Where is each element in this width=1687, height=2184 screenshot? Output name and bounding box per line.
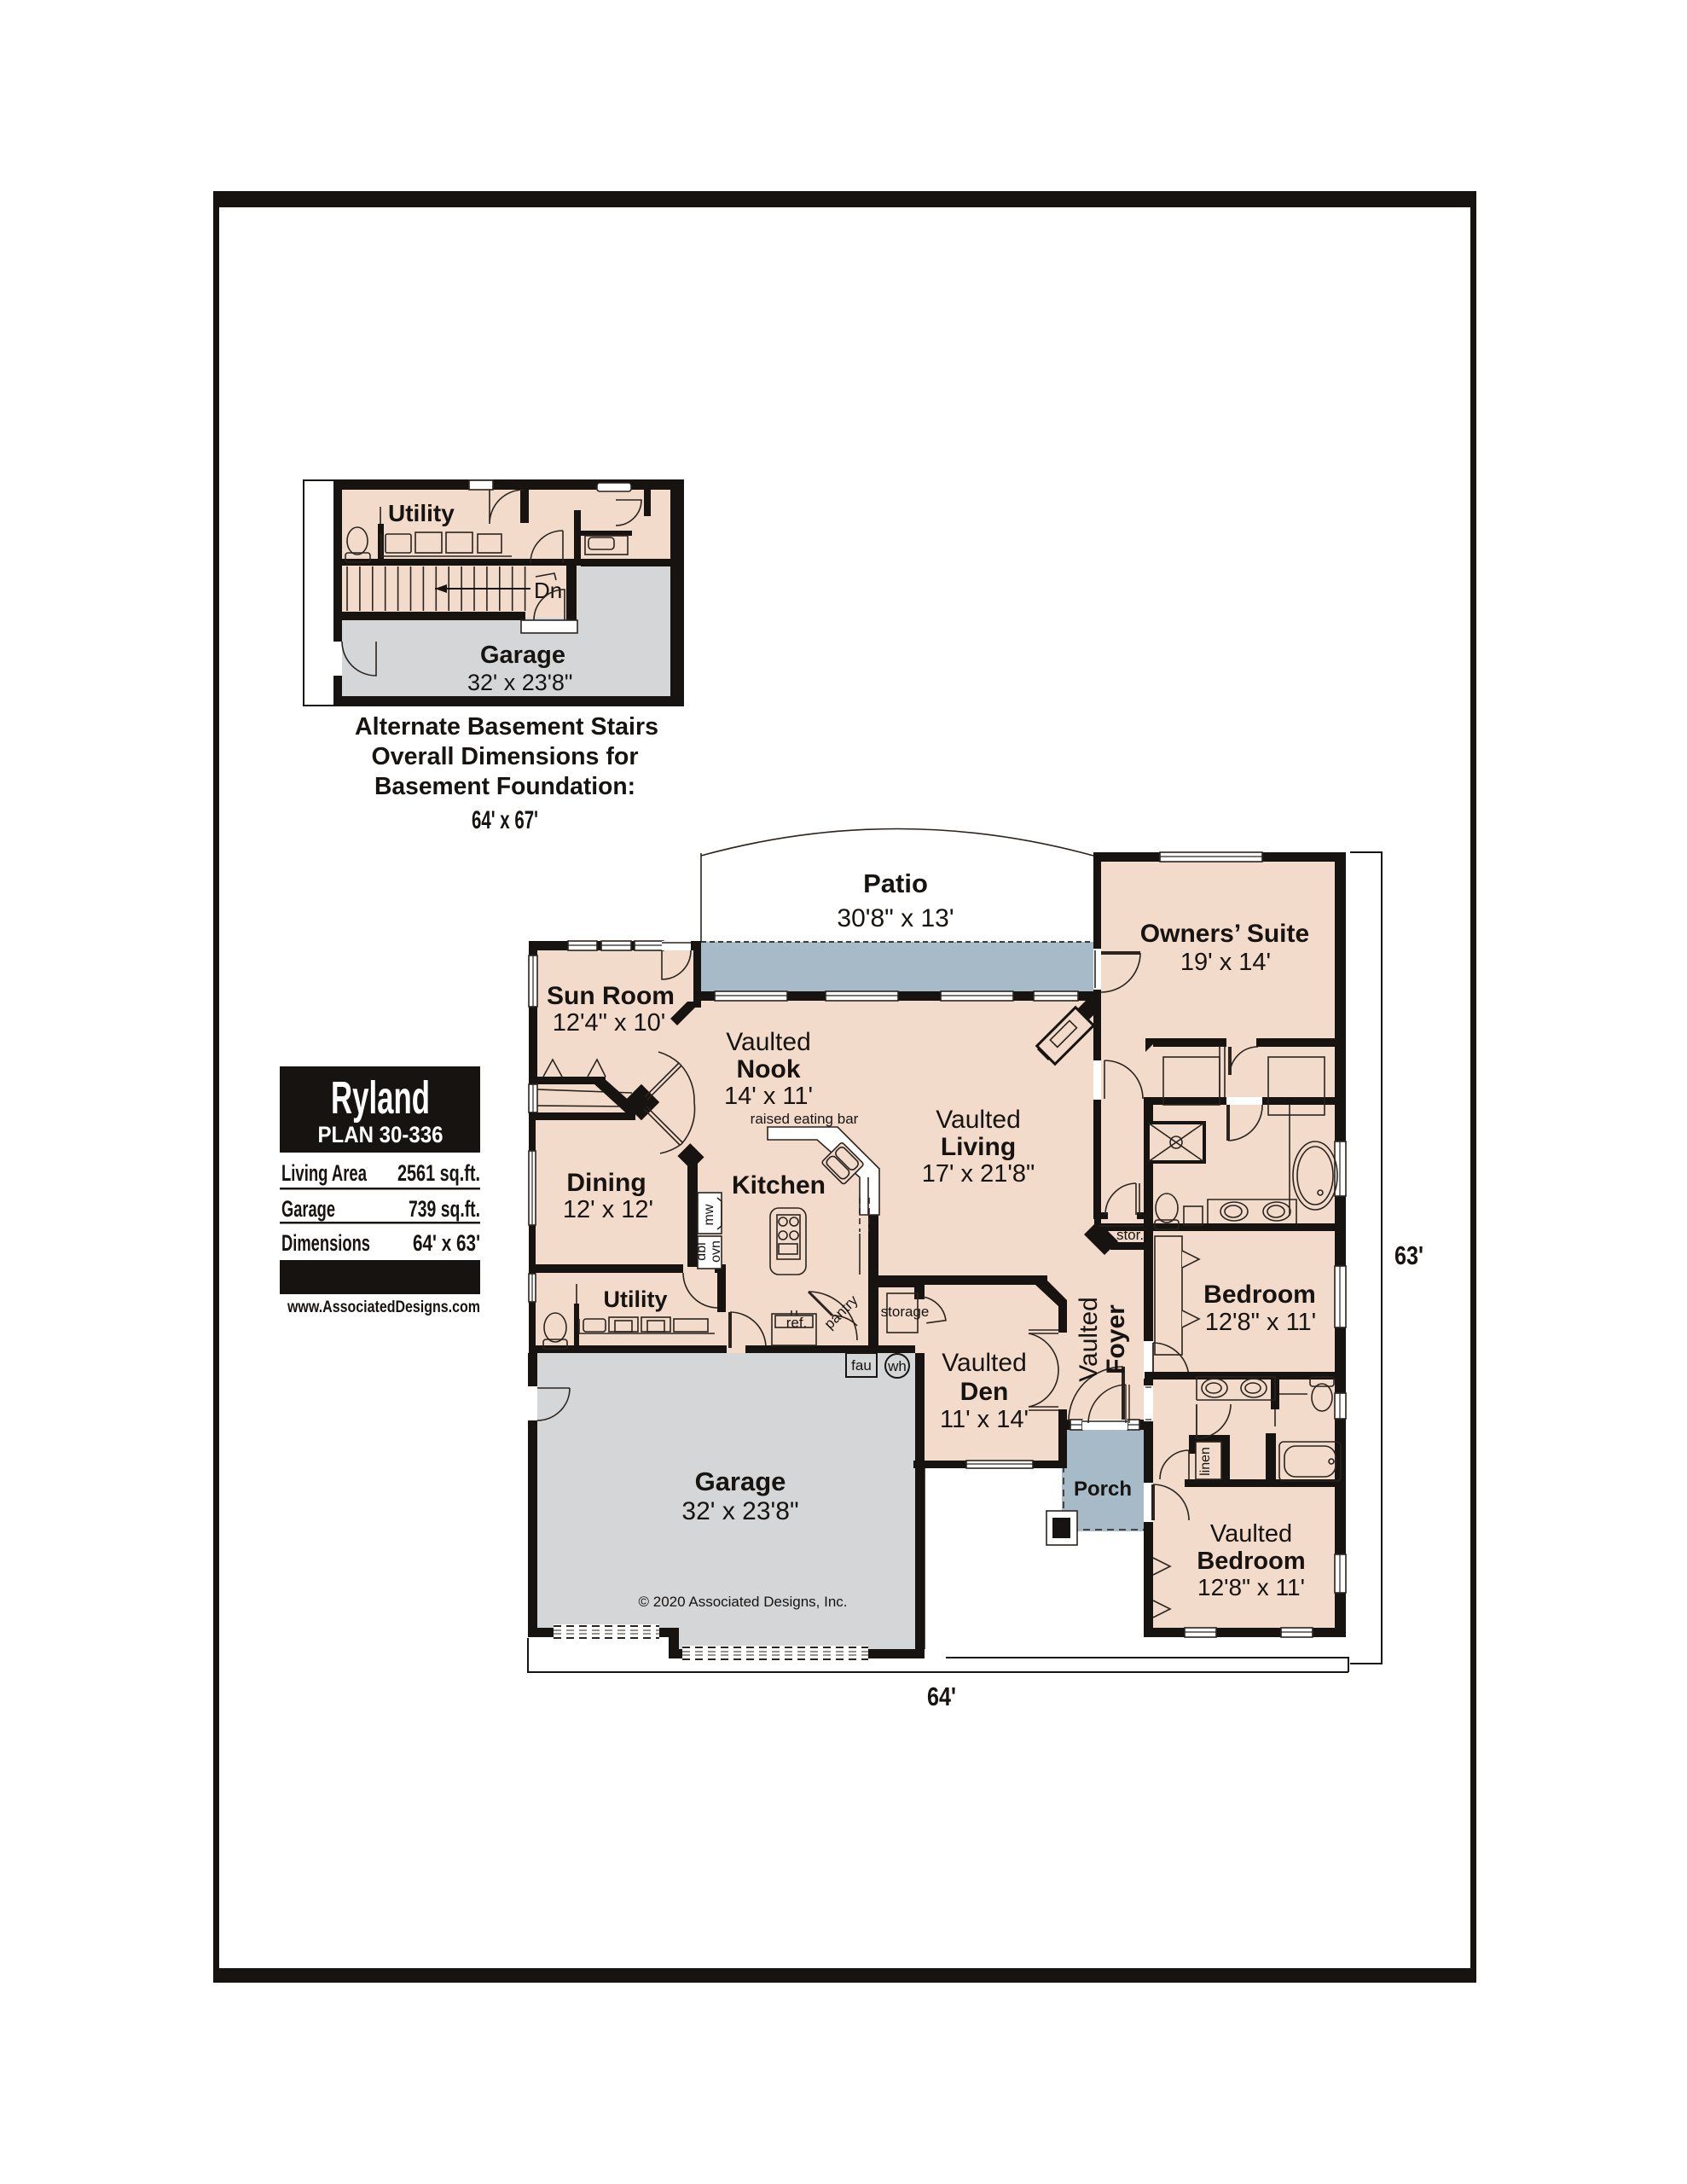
svg-text:ref.: ref. — [786, 1315, 808, 1331]
svg-text:Living Area: Living Area — [281, 1160, 368, 1186]
svg-text:Alternate Basement Stairs: Alternate Basement Stairs — [355, 713, 658, 741]
svg-text:mw: mw — [702, 1204, 716, 1225]
svg-text:32' x 23'8": 32' x 23'8" — [467, 670, 572, 695]
svg-text:12'8" x 11': 12'8" x 11' — [1197, 1574, 1305, 1600]
svg-text:Dimensions: Dimensions — [281, 1230, 370, 1256]
svg-text:Overall Dimensions for: Overall Dimensions for — [372, 743, 639, 770]
svg-text:2561 sq.ft.: 2561 sq.ft. — [397, 1160, 480, 1186]
svg-text:739 sq.ft.: 739 sq.ft. — [409, 1196, 480, 1222]
svg-text:19' x 14': 19' x 14' — [1180, 949, 1271, 976]
svg-text:11' x 14': 11' x 14' — [940, 1406, 1029, 1433]
svg-text:Basement Foundation:: Basement Foundation: — [374, 773, 635, 800]
svg-text:Vaulted: Vaulted — [726, 1028, 811, 1056]
svg-text:storage: storage — [881, 1304, 930, 1320]
svg-text:Sun Room: Sun Room — [547, 982, 675, 1010]
svg-text:fau: fau — [851, 1357, 872, 1374]
svg-text:64' x 67': 64' x 67' — [472, 806, 538, 834]
svg-text:Living: Living — [941, 1133, 1016, 1161]
svg-text:17' x 21'8": 17' x 21'8" — [922, 1160, 1035, 1188]
svg-text:ovn: ovn — [709, 1240, 723, 1263]
svg-text:Dining: Dining — [566, 1169, 646, 1197]
svg-text:Bedroom: Bedroom — [1203, 1281, 1316, 1309]
svg-text:raised eating bar: raised eating bar — [751, 1111, 859, 1127]
svg-text:dbl: dbl — [694, 1242, 709, 1260]
svg-text:Vaulted: Vaulted — [1075, 1297, 1103, 1382]
svg-text:Kitchen: Kitchen — [732, 1171, 826, 1199]
svg-text:14' x 11': 14' x 11' — [724, 1083, 813, 1110]
svg-text:64': 64' — [927, 1682, 956, 1711]
svg-text:Garage: Garage — [695, 1467, 786, 1496]
svg-text:Foyer: Foyer — [1102, 1304, 1130, 1374]
svg-text:Bedroom: Bedroom — [1197, 1548, 1305, 1575]
svg-text:Nook: Nook — [737, 1055, 801, 1083]
svg-text:Garage: Garage — [281, 1196, 335, 1222]
svg-text:© 2020 Associated Designs, Inc: © 2020 Associated Designs, Inc. — [639, 1594, 848, 1610]
svg-text:64' x 63': 64' x 63' — [413, 1230, 480, 1256]
svg-text:Vaulted: Vaulted — [942, 1349, 1027, 1377]
svg-text:63': 63' — [1394, 1240, 1423, 1270]
svg-text:Porch: Porch — [1074, 1478, 1132, 1501]
svg-text:PLAN 30-336: PLAN 30-336 — [318, 1122, 443, 1147]
svg-text:Vaulted: Vaulted — [936, 1106, 1021, 1134]
svg-text:stor.: stor. — [1116, 1227, 1144, 1243]
svg-text:12'8" x 11': 12'8" x 11' — [1205, 1309, 1316, 1336]
svg-text:Utility: Utility — [603, 1287, 667, 1312]
svg-text:30'8" x 13': 30'8" x 13' — [837, 904, 954, 932]
svg-text:12' x 12': 12' x 12' — [563, 1196, 653, 1223]
svg-text:linen: linen — [1198, 1447, 1213, 1476]
svg-text:Den: Den — [960, 1378, 1009, 1406]
svg-text:Vaulted: Vaulted — [1210, 1520, 1292, 1548]
svg-text:Utility: Utility — [388, 500, 455, 526]
svg-text:www.AssociatedDesigns.com: www.AssociatedDesigns.com — [287, 1298, 480, 1316]
svg-text:wh: wh — [887, 1358, 907, 1374]
svg-text:Ryland: Ryland — [331, 1072, 430, 1124]
svg-text:12'4" x 10': 12'4" x 10' — [553, 1009, 666, 1037]
svg-text:Garage: Garage — [480, 642, 565, 669]
svg-text:Owners’ Suite: Owners’ Suite — [1140, 920, 1309, 948]
svg-text:32' x 23'8": 32' x 23'8" — [681, 1497, 798, 1525]
svg-text:Patio: Patio — [863, 868, 928, 898]
